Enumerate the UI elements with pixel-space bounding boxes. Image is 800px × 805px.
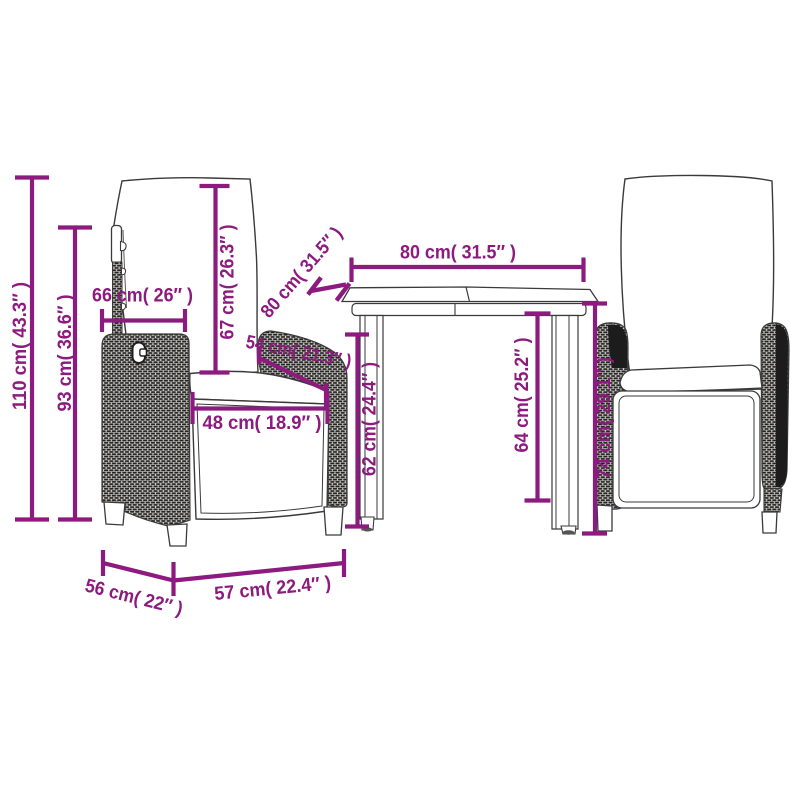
svg-text:48 cm( 18.9″ ): 48 cm( 18.9″ ) (203, 413, 322, 434)
svg-text:80 cm( 31.5″ ): 80 cm( 31.5″ ) (400, 243, 516, 264)
svg-text:93 cm( 36.6″ ): 93 cm( 36.6″ ) (55, 295, 76, 412)
svg-text:66 cm( 26″ ): 66 cm( 26″ ) (92, 286, 193, 307)
svg-text:74 cm( 29.1″ ): 74 cm( 29.1″ ) (594, 357, 615, 479)
svg-text:62 cm( 24.4″ ): 62 cm( 24.4″ ) (360, 362, 381, 476)
svg-text:110 cm( 43.3″ ): 110 cm( 43.3″ ) (10, 282, 31, 410)
svg-text:67 cm( 26.3″ ): 67 cm( 26.3″ ) (218, 225, 239, 340)
svg-text:64 cm( 25.2″ ): 64 cm( 25.2″ ) (512, 338, 533, 453)
